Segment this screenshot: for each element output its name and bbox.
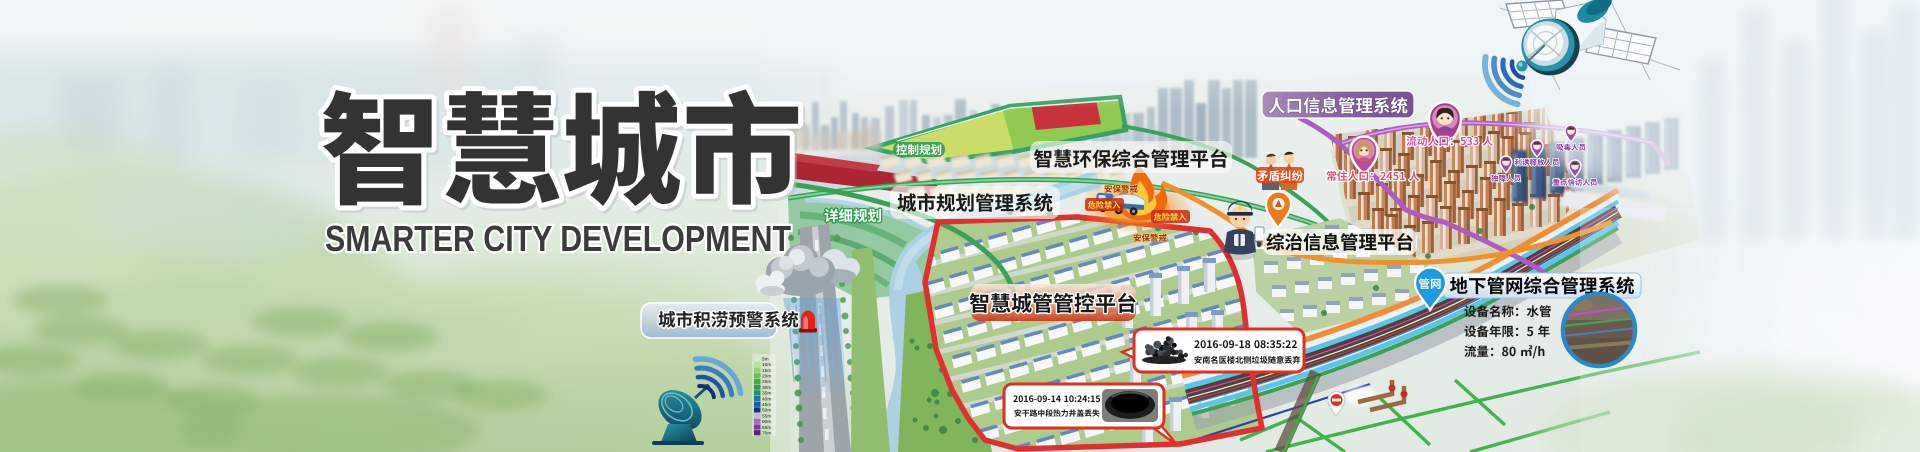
svg-text:55m: 55m	[762, 413, 771, 419]
svg-text:45m: 45m	[762, 402, 771, 408]
svg-text:25m: 25m	[762, 379, 771, 385]
svg-text:20m: 20m	[762, 374, 771, 380]
svg-text:15m: 15m	[762, 368, 771, 374]
svg-text:65m: 65m	[762, 425, 771, 431]
svg-text:30m: 30m	[762, 385, 771, 391]
svg-text:40m: 40m	[762, 396, 771, 402]
svg-text:10m: 10m	[762, 362, 771, 368]
svg-text:5m: 5m	[762, 356, 769, 362]
svg-text:70m: 70m	[762, 431, 771, 437]
svg-text:SMARTER CITY DEVELOPMENT: SMARTER CITY DEVELOPMENT	[325, 218, 791, 259]
svg-text:50m: 50m	[762, 408, 771, 414]
svg-text:35m: 35m	[762, 391, 771, 397]
svg-text:60m: 60m	[762, 419, 771, 425]
